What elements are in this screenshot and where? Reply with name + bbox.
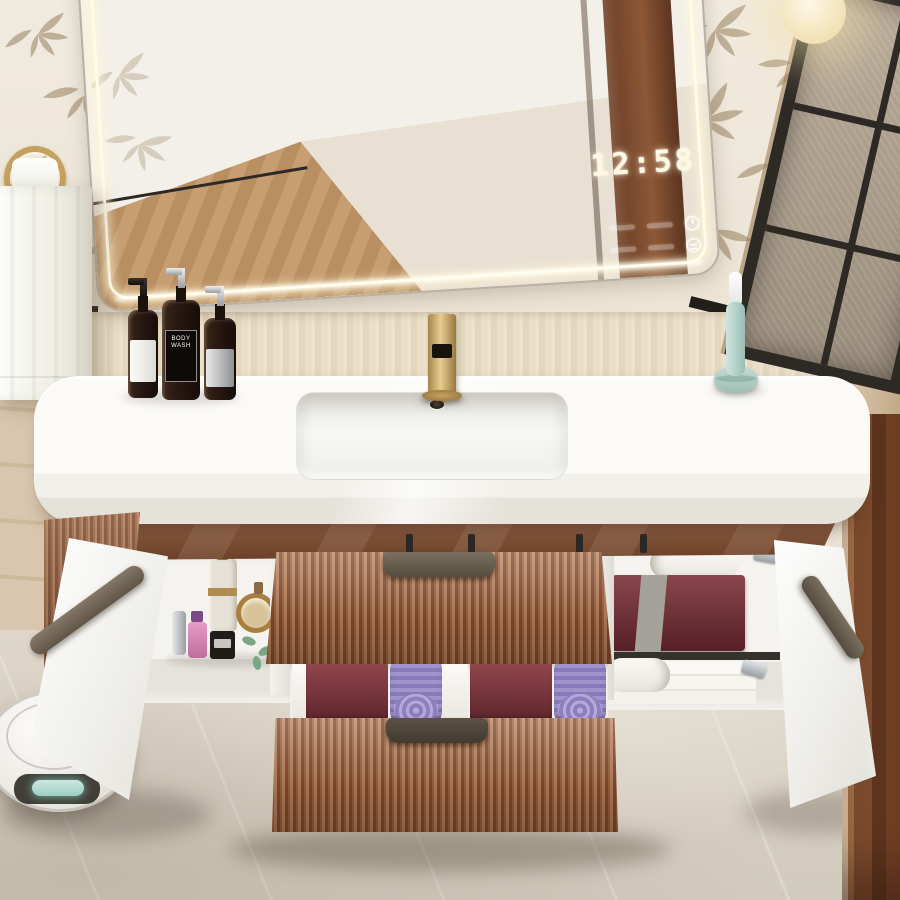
bottle-neck [176,286,186,302]
soap-bottle-body-wash: BODY WASH [162,300,200,400]
bottle-pump [178,268,185,288]
burgundy-towel [470,660,552,722]
faucet-sensor-face [432,344,452,358]
purple-towel-roll [390,656,442,726]
drawer-glide [576,534,583,553]
floor-shadow-center [230,826,670,872]
bottle-neck [138,296,148,312]
window-muntin [821,7,900,365]
lower-drawer-towels [290,656,608,726]
bottle-neck [215,304,225,320]
perfume-bottle-pink [188,622,207,658]
drawer-glide [640,534,647,553]
right-cabinet-interior [598,538,794,710]
perfume-atomizer [172,611,186,655]
bottle-label [206,349,234,387]
bottle-label [130,340,156,382]
drawer-glide [468,534,475,553]
rolled-white-towel [606,658,670,692]
perfume-bottle-tall [208,558,237,632]
body-wash-label: BODY WASH [165,330,197,382]
bottle-pump [140,278,147,298]
lower-drawer-handle[interactable] [386,718,488,743]
leaf-decor [241,635,257,647]
toothbrush-head [729,272,742,306]
mirror-led-strip [88,0,708,300]
robot-display [32,780,84,796]
burgundy-towel [306,660,388,722]
soap-bottle-left [128,310,158,398]
led-mirror: 12:58 [75,0,721,313]
soap-bottle-right [204,318,236,400]
window-muntin [765,224,900,266]
faucet-base [422,390,462,401]
bottle-pump [217,286,224,306]
burgundy-towel [612,575,745,651]
white-towel-edge [442,662,468,720]
purple-towel-roll [554,656,606,726]
upper-drawer-handle[interactable] [383,552,495,577]
bathroom-vanity-photo: 12:58 [0,0,900,900]
perfume-bottle-black [210,631,235,659]
electric-toothbrush [726,302,745,376]
drawer-glide [406,534,413,553]
hand-towel [0,186,92,400]
white-towel-edge [292,662,306,720]
towel-gray-stripe [635,575,668,651]
